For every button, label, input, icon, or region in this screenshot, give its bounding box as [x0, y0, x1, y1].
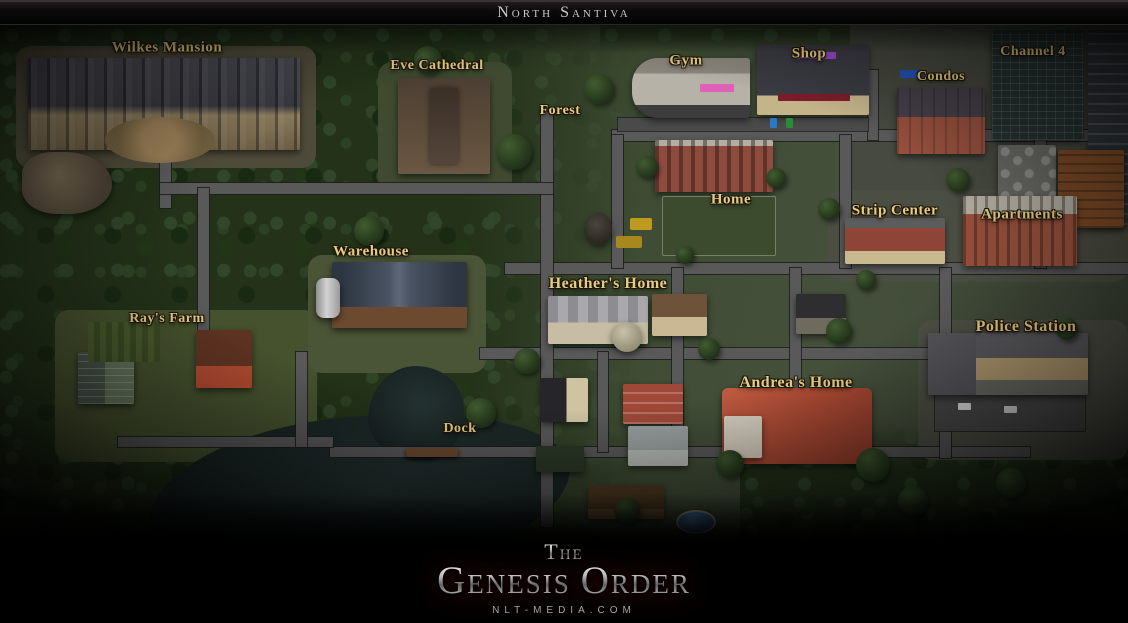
map-label-andreas-home[interactable]: Andrea's Home [739, 374, 852, 392]
map-label-shop[interactable]: Shop [792, 46, 827, 63]
map-label-dock[interactable]: Dock [443, 421, 476, 437]
tree [584, 74, 614, 104]
police-car-2 [1004, 406, 1017, 413]
footer: The Genesis Order NLT-MEDIA.COM [0, 540, 1128, 623]
tree [636, 156, 658, 178]
tree [898, 486, 928, 516]
farm-field [88, 322, 160, 362]
cathedral-spire [430, 88, 458, 164]
building-condos [897, 88, 985, 154]
map-label-home[interactable]: Home [711, 192, 751, 209]
cliff-rocks [22, 152, 112, 214]
logo-order-wrap: Order [581, 562, 691, 600]
road-houses-mid [598, 352, 608, 452]
logo-order: Order [581, 559, 691, 602]
tree [698, 338, 720, 360]
map-label-eve-cathedral[interactable]: Eve Cathedral [390, 58, 483, 74]
website-url: NLT-MEDIA.COM [492, 605, 636, 616]
dock-pier [406, 448, 458, 457]
tree [856, 270, 876, 290]
house-dark-roof [540, 378, 588, 422]
tree [856, 448, 890, 482]
map-title-bar: North Santiva [0, 0, 1128, 25]
map-label-gym[interactable]: Gym [669, 53, 702, 70]
pool [676, 510, 716, 534]
tree [766, 168, 786, 188]
tree [676, 246, 694, 264]
house-gray [628, 426, 688, 466]
game-map-screen: North Santiva [0, 0, 1128, 623]
warehouse-silo [316, 278, 340, 318]
bulldozer [616, 236, 642, 248]
tree [818, 198, 840, 220]
tree [946, 168, 970, 192]
region-title: North Santiva [497, 4, 630, 22]
recycle-bin-green [786, 118, 793, 128]
world-map: Wilkes Mansion Eve Cathedral Forest Gym … [0, 22, 1128, 540]
map-label-channel-4[interactable]: Channel 4 [1000, 44, 1066, 60]
building-strip-center [845, 218, 945, 264]
building-warehouse [332, 262, 467, 328]
recycle-bin-blue [770, 118, 777, 128]
shop-awning [778, 94, 850, 101]
excavator [630, 218, 652, 230]
gym-sign [700, 84, 734, 92]
map-label-forest[interactable]: Forest [540, 103, 581, 119]
map-label-heathers-home[interactable]: Heather's Home [549, 275, 668, 293]
police-parking [935, 395, 1085, 431]
map-label-wilkes-mansion[interactable]: Wilkes Mansion [112, 40, 223, 57]
gym-parking [618, 118, 868, 131]
map-label-condos[interactable]: Condos [917, 69, 965, 85]
tree [996, 468, 1026, 498]
building-home-apartment [655, 140, 773, 192]
building-police-station [928, 333, 1088, 395]
police-car-1 [958, 403, 971, 410]
road-shop-side [868, 70, 878, 140]
tree [614, 498, 640, 524]
map-label-rays-farm[interactable]: Ray's Farm [129, 311, 204, 327]
tree [716, 450, 744, 478]
building-rooftop-hvac [998, 145, 1056, 197]
road-home-west [612, 135, 623, 268]
road-farm-east [296, 352, 307, 447]
map-label-strip-center[interactable]: Strip Center [852, 203, 938, 220]
map-label-warehouse[interactable]: Warehouse [333, 244, 409, 261]
map-label-police-station[interactable]: Police Station [976, 318, 1077, 336]
water-tower [586, 213, 612, 245]
map-label-apartments[interactable]: Apartments [981, 207, 1063, 224]
tree [826, 318, 852, 344]
tree [354, 216, 384, 246]
farm-barn [196, 330, 252, 388]
house-green-roof [536, 446, 584, 472]
heather-tower [612, 322, 642, 352]
mansion-courtyard [105, 117, 215, 163]
tree [496, 134, 532, 170]
building-neighbor-east [652, 294, 707, 336]
game-logo: Genesis Order [437, 562, 691, 600]
tree [514, 348, 540, 374]
road-cathedral [160, 183, 553, 194]
logo-genesis: Genesis [437, 562, 571, 600]
house-red-roof [623, 384, 683, 424]
